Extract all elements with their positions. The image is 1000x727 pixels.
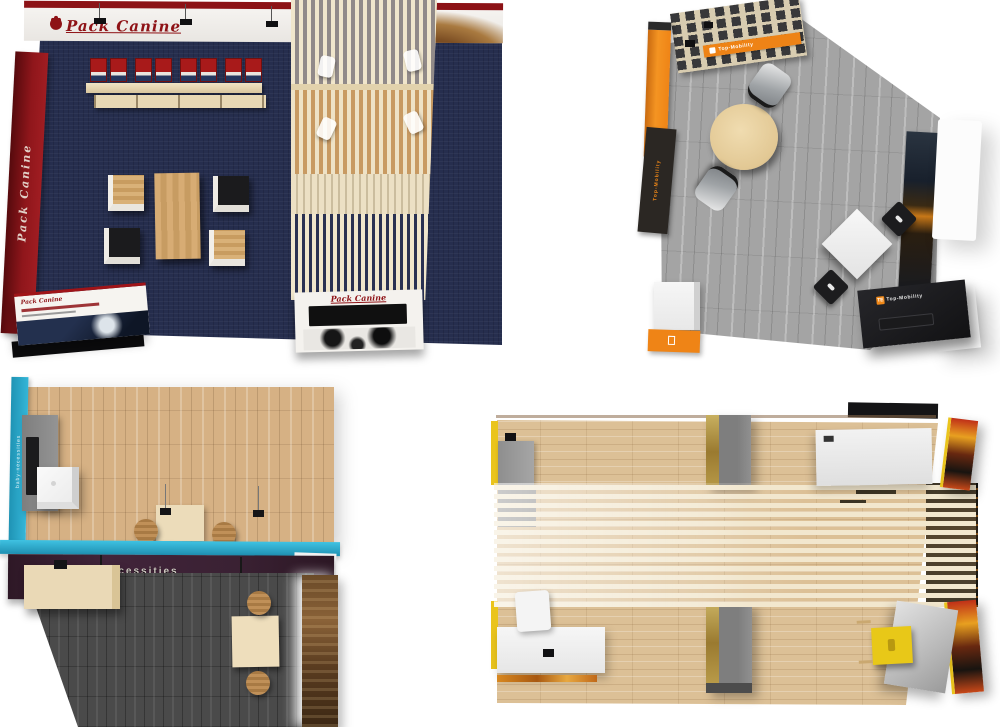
- product-bag: [90, 58, 107, 82]
- product-shelf: [86, 58, 262, 112]
- gray-wall-panel: [498, 441, 534, 487]
- wood-graphic-wall: [302, 575, 338, 727]
- counter-front-graphic: [497, 675, 597, 682]
- tv-screen: [309, 304, 407, 327]
- counter-logo: Pack Canine: [20, 296, 62, 307]
- white-chair: [515, 590, 552, 632]
- yellow-edge-trim: [491, 421, 498, 485]
- white-counter: [816, 428, 933, 486]
- white-wall-panel: [932, 119, 982, 241]
- black-counter: TE Top-Mobility: [857, 280, 970, 349]
- pergola-slats-dense: [291, 174, 437, 214]
- te-logo-icon: TE: [876, 296, 885, 305]
- hanging-spotlight: [54, 560, 67, 569]
- product-bag: [155, 58, 172, 82]
- graphic-wall: [940, 417, 978, 490]
- pergola-slats-lower: [291, 214, 437, 300]
- cube-stool-wood: [209, 230, 245, 266]
- pack-canine-logo: Pack Canine: [66, 17, 181, 36]
- round-wood-stool: [247, 591, 271, 615]
- display-panel: Pack Canine: [294, 289, 424, 352]
- booth-top-mobility: Top-Mobility Top-Mobility TE Top-Mobilit…: [640, 0, 992, 365]
- shelf-banner-label: Top-Mobility: [718, 42, 754, 53]
- yellow-stool-table: [871, 626, 913, 665]
- product-bag: [245, 58, 262, 82]
- counter-logo-label: Top-Mobility: [886, 293, 923, 303]
- divider-wall: [706, 603, 752, 693]
- pergola-slats-top: [291, 0, 437, 84]
- round-wood-stool: [134, 519, 158, 543]
- cube-stool-black: [104, 228, 140, 264]
- hanging-spotlight: [266, 21, 278, 27]
- paw-logo-icon: [50, 18, 62, 30]
- hanging-spotlight: [704, 22, 713, 28]
- hanging-spotlight: [505, 433, 516, 441]
- product-bag: [135, 58, 152, 82]
- shelf-board: [94, 95, 266, 108]
- slat-canopy: [494, 483, 976, 607]
- booth-baby-necessities: baby-necessities baby-necessities: [0, 375, 342, 727]
- booth-pack-canine: Pack Canine Pack Canine: [8, 0, 503, 362]
- counter-tray: [878, 313, 934, 331]
- booth-slat-pavilion: [488, 403, 993, 715]
- hanging-spotlight: [543, 649, 554, 657]
- wood-table: [154, 173, 200, 260]
- hanging-spotlight: [253, 510, 264, 517]
- plywood-table: [232, 616, 280, 668]
- white-counter: [497, 627, 605, 673]
- divider-wall: [706, 415, 751, 489]
- product-bag: [180, 58, 197, 82]
- shelf-board: [86, 83, 262, 93]
- logo-mark-icon: [668, 336, 675, 345]
- hanging-spotlight: [180, 19, 192, 25]
- panel-logo: Pack Canine: [294, 291, 422, 304]
- shelf-banner: Top-Mobility: [703, 32, 802, 58]
- white-cube-counter: [37, 467, 79, 509]
- orange-base-sign: [648, 329, 701, 353]
- round-wood-stool: [246, 671, 270, 695]
- product-bag: [200, 58, 217, 82]
- cube-stool-black: [213, 176, 249, 212]
- logo-mark-icon: [709, 47, 716, 54]
- product-bag-row: [90, 58, 262, 82]
- plywood-counter: [24, 565, 120, 609]
- dog-photo-graphic: [303, 327, 416, 351]
- hanging-spotlight: [160, 508, 171, 515]
- hanging-spotlight: [94, 18, 106, 24]
- white-cube-counter: [654, 282, 700, 330]
- wood-slat-pergola: [291, 0, 437, 300]
- booth-render-collage: Pack Canine Pack Canine: [0, 0, 1000, 727]
- product-bag: [225, 58, 242, 82]
- product-bag: [110, 58, 127, 82]
- counter-logo: TE Top-Mobility: [876, 292, 923, 305]
- cube-stool-wood: [108, 175, 144, 211]
- hanging-spotlight: [685, 40, 695, 47]
- round-table: [710, 104, 778, 170]
